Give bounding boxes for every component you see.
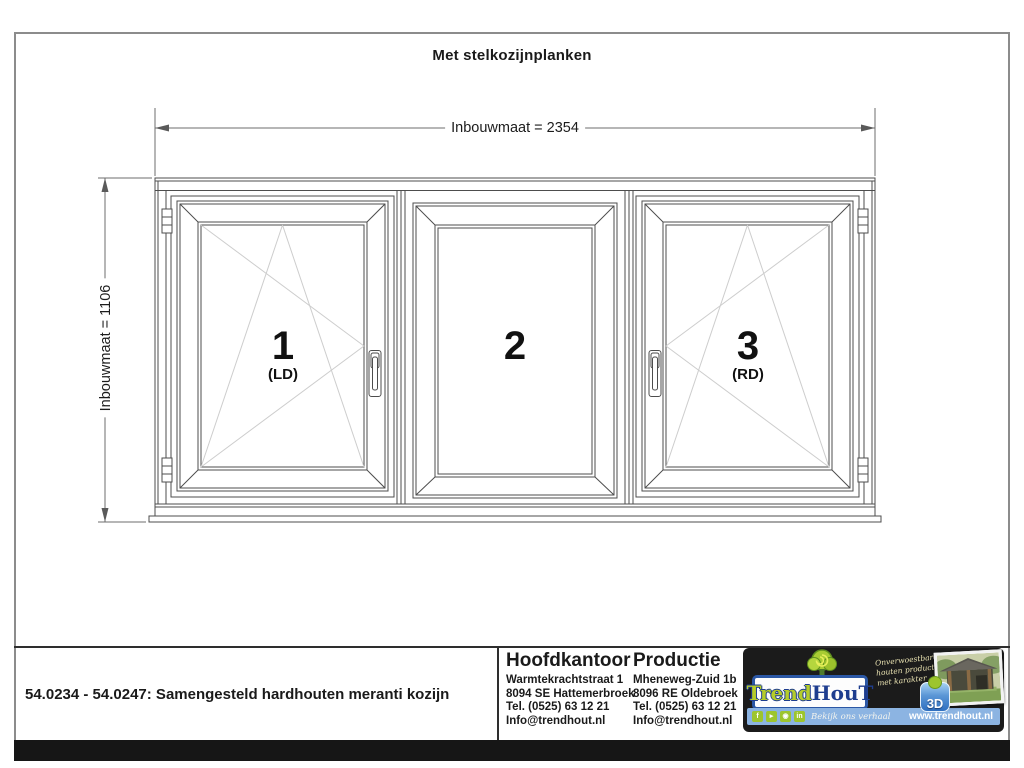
hoofdkantoor-phone: Tel. (0525) 63 12 21 — [506, 701, 634, 715]
badge-3d-text: 3D — [927, 696, 944, 711]
productie-city: 8096 RE Oldebroek — [633, 688, 738, 702]
brand-logo-block: TrendHouT Onverwoestbare houten producte… — [743, 648, 1004, 732]
dimension-label-height: Inbouwmaat = 1106 — [98, 279, 114, 418]
hoofdkantoor-email: Info@trendhout.nl — [506, 715, 634, 729]
footer-vertical-divider — [497, 648, 499, 740]
mullion-right — [625, 191, 633, 505]
panel-label-1: 1 (LD) — [268, 326, 298, 383]
hoofdkantoor-street: Warmtekrachtstraat 1 — [506, 674, 634, 688]
3d-app-badge: 3D — [920, 682, 950, 712]
panel-number: 2 — [504, 326, 526, 366]
social-icon: in — [794, 711, 805, 722]
mullion-left — [397, 191, 405, 505]
social-icon: f — [752, 711, 763, 722]
logo-text-hout: HouT — [812, 681, 874, 705]
trendhout-logo: TrendHouT — [752, 675, 868, 710]
panel-number: 1 — [268, 326, 298, 366]
hoofdkantoor-heading: Hoofdkantoor — [506, 650, 634, 671]
panel-label-3: 3 (RD) — [732, 326, 764, 383]
panel-opening-type: (RD) — [732, 366, 764, 383]
hoofdkantoor-city: 8094 SE Hattemerbroek — [506, 688, 634, 702]
handle-right-window-icon — [649, 351, 661, 397]
social-icons-row: f ▸ ◉ in — [752, 711, 805, 722]
dimension-lines — [98, 108, 875, 522]
drawing-sheet: Met stelkozijnplanken — [0, 0, 1024, 768]
panel-opening-type: (LD) — [268, 366, 298, 383]
social-icon: ◉ — [780, 711, 791, 722]
dimension-label-width: Inbouwmaat = 2354 — [445, 120, 585, 136]
handle-left-window-icon — [369, 351, 381, 397]
panel-number: 3 — [732, 326, 764, 366]
panel-label-2: 2 — [504, 326, 526, 366]
website-url: www.trendhout.nl — [909, 711, 993, 722]
product-title: 54.0234 - 54.0247: Samengesteld hardhout… — [25, 686, 449, 704]
badge-tree-icon — [928, 676, 942, 689]
productie-street: Mheneweg-Zuid 1b — [633, 674, 738, 688]
productie-email: Info@trendhout.nl — [633, 715, 738, 729]
brand-blue-bar: f ▸ ◉ in Bekijk ons verhaal www.trendhou… — [747, 708, 1000, 725]
technical-drawing — [0, 0, 1024, 640]
logo-text-trend: Trend — [747, 681, 812, 705]
bottom-black-bar — [14, 740, 1010, 761]
social-caption: Bekijk ons verhaal — [811, 712, 891, 722]
social-icon: ▸ — [766, 711, 777, 722]
address-hoofdkantoor: Hoofdkantoor Warmtekrachtstraat 1 8094 S… — [506, 650, 634, 728]
productie-heading: Productie — [633, 650, 738, 671]
productie-phone: Tel. (0525) 63 12 21 — [633, 701, 738, 715]
address-productie: Productie Mheneweg-Zuid 1b 8096 RE Oldeb… — [633, 650, 738, 728]
